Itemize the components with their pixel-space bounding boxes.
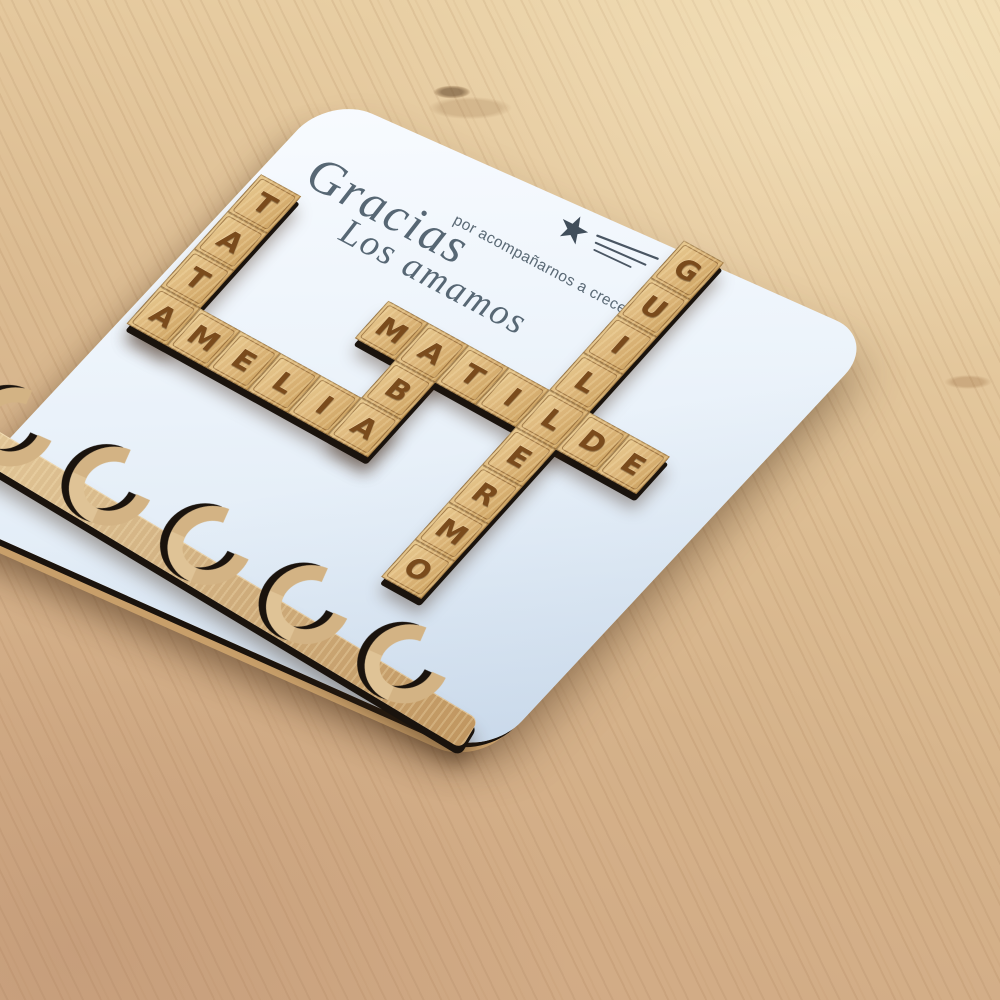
photo-scene: Gracias por acompañarnos a crecer, Los a…: [0, 0, 1000, 1000]
